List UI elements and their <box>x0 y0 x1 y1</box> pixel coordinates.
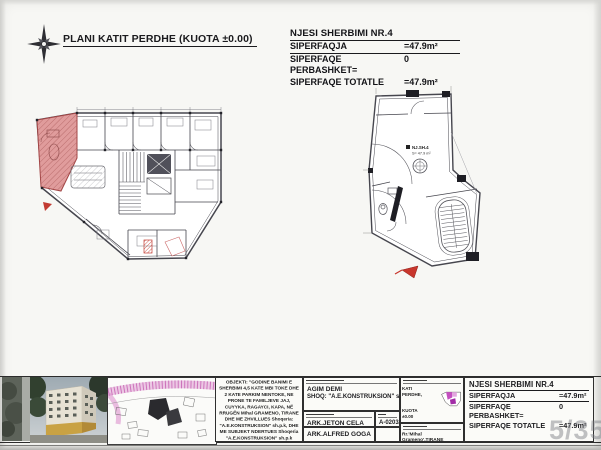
unit-info-label: SIPERFAQJA <box>290 41 404 53</box>
cell-header-mark <box>403 380 461 385</box>
page-number-watermark: 5/35 <box>549 415 601 446</box>
architect-1-cell: ARK.JETON CELA <box>303 411 375 427</box>
unit-detail-plan-drawing: NJ.SH.4 S= 47.9 m² <box>356 82 496 294</box>
cell-header-mark <box>306 380 397 385</box>
scanned-floorplan-sheet: PLANI KATIT PERDHE (KUOTA ±0.00) NJESI S… <box>0 0 601 450</box>
license-number: A-0203/3 <box>376 419 399 426</box>
label-marker <box>406 145 410 149</box>
empty-cell <box>375 427 400 442</box>
unit-info-label: SIPERFAQE PERBASHKET= <box>469 402 559 421</box>
investor-cell: AGIM DEMI SHOQ: "A.E.KONSTRUKSION" sh.p.… <box>303 377 400 411</box>
dimension-ticks <box>77 107 221 112</box>
unit-info-block: NJESI SHERBIMI NR.4 SIPERFAQJA =47.9m² S… <box>290 28 460 88</box>
compass-icon <box>27 23 61 65</box>
site-map <box>107 377 217 445</box>
scan-edge-top <box>0 0 601 5</box>
unit-label: NJ.SH.4 <box>412 145 429 150</box>
ground-floor-plan-drawing <box>27 90 239 292</box>
unit-info-title: NJESI SHERBIMI NR.4 <box>469 380 589 391</box>
unit-info-label: SIPERFAQJA <box>469 391 559 401</box>
architect-1-name: ARK.JETON CELA <box>304 419 374 427</box>
table-symbol <box>413 159 427 173</box>
ramp <box>71 166 105 188</box>
architect-2-cell: ARK.ALFRED GOGA <box>303 427 375 442</box>
unit-info-title: NJESI SHERBIMI NR.4 <box>290 28 460 41</box>
unit-area-label: S= 47.9 m² <box>412 152 431 156</box>
investor-company: SHOQ: "A.E.KONSTRUKSION" sh.p.k <box>304 393 399 400</box>
building-photo <box>30 377 107 443</box>
unit-info-value: 0 <box>404 54 460 77</box>
entrance-marker <box>395 266 418 278</box>
unit-info-label: SIPERFAQE TOTATLE <box>469 421 559 431</box>
architect-2-name: ARK.ALFRED GOGA <box>304 428 374 438</box>
floor-keyplan-cell: KATI PERDHE, KUOTA ±0.00 <box>400 377 464 423</box>
title-block: OBJEKTI: "GODINE BANIMI E SHERBIMI 4,5 K… <box>0 376 601 445</box>
unit-info-value: =47.9m² <box>404 41 460 53</box>
page-title: PLANI KATIT PERDHE (KUOTA ±0.00) <box>63 33 257 47</box>
cell-header-mark <box>403 426 461 431</box>
license-cell: A-0203/3 <box>375 411 400 427</box>
unit-info-row: SIPERFAQJA =47.9m² <box>469 391 589 402</box>
titleblock-bottom-rule-2 <box>0 445 601 446</box>
unit-info-row: SIPERFAQE PERBASHKET= 0 <box>290 54 460 77</box>
unit-info-label: SIPERFAQE PERBASHKET= <box>290 54 404 77</box>
unit-info-value: =47.9m² <box>559 391 589 401</box>
cell-header-mark <box>378 414 397 419</box>
floor-quota: KUOTA ±0.00 <box>401 407 430 420</box>
project-description: OBJEKTI: "GODINE BANIMI E SHERBIMI 4,5 K… <box>216 378 302 442</box>
address-cell: Rr.'Mihal Grameno',TIRANE <box>400 423 464 442</box>
investor-name: AGIM DEMI <box>304 385 399 393</box>
cell-header-mark <box>306 414 372 419</box>
site-photo-strip <box>2 377 30 441</box>
key-plan-icon <box>440 385 463 413</box>
unit-info-row: SIPERFAQJA =47.9m² <box>290 41 460 54</box>
address: Rr.'Mihal Grameno',TIRANE <box>401 431 464 442</box>
floor-label: KATI PERDHE, <box>401 385 430 398</box>
project-description-cell: OBJEKTI: "GODINE BANIMI E SHERBIMI 4,5 K… <box>215 377 303 442</box>
